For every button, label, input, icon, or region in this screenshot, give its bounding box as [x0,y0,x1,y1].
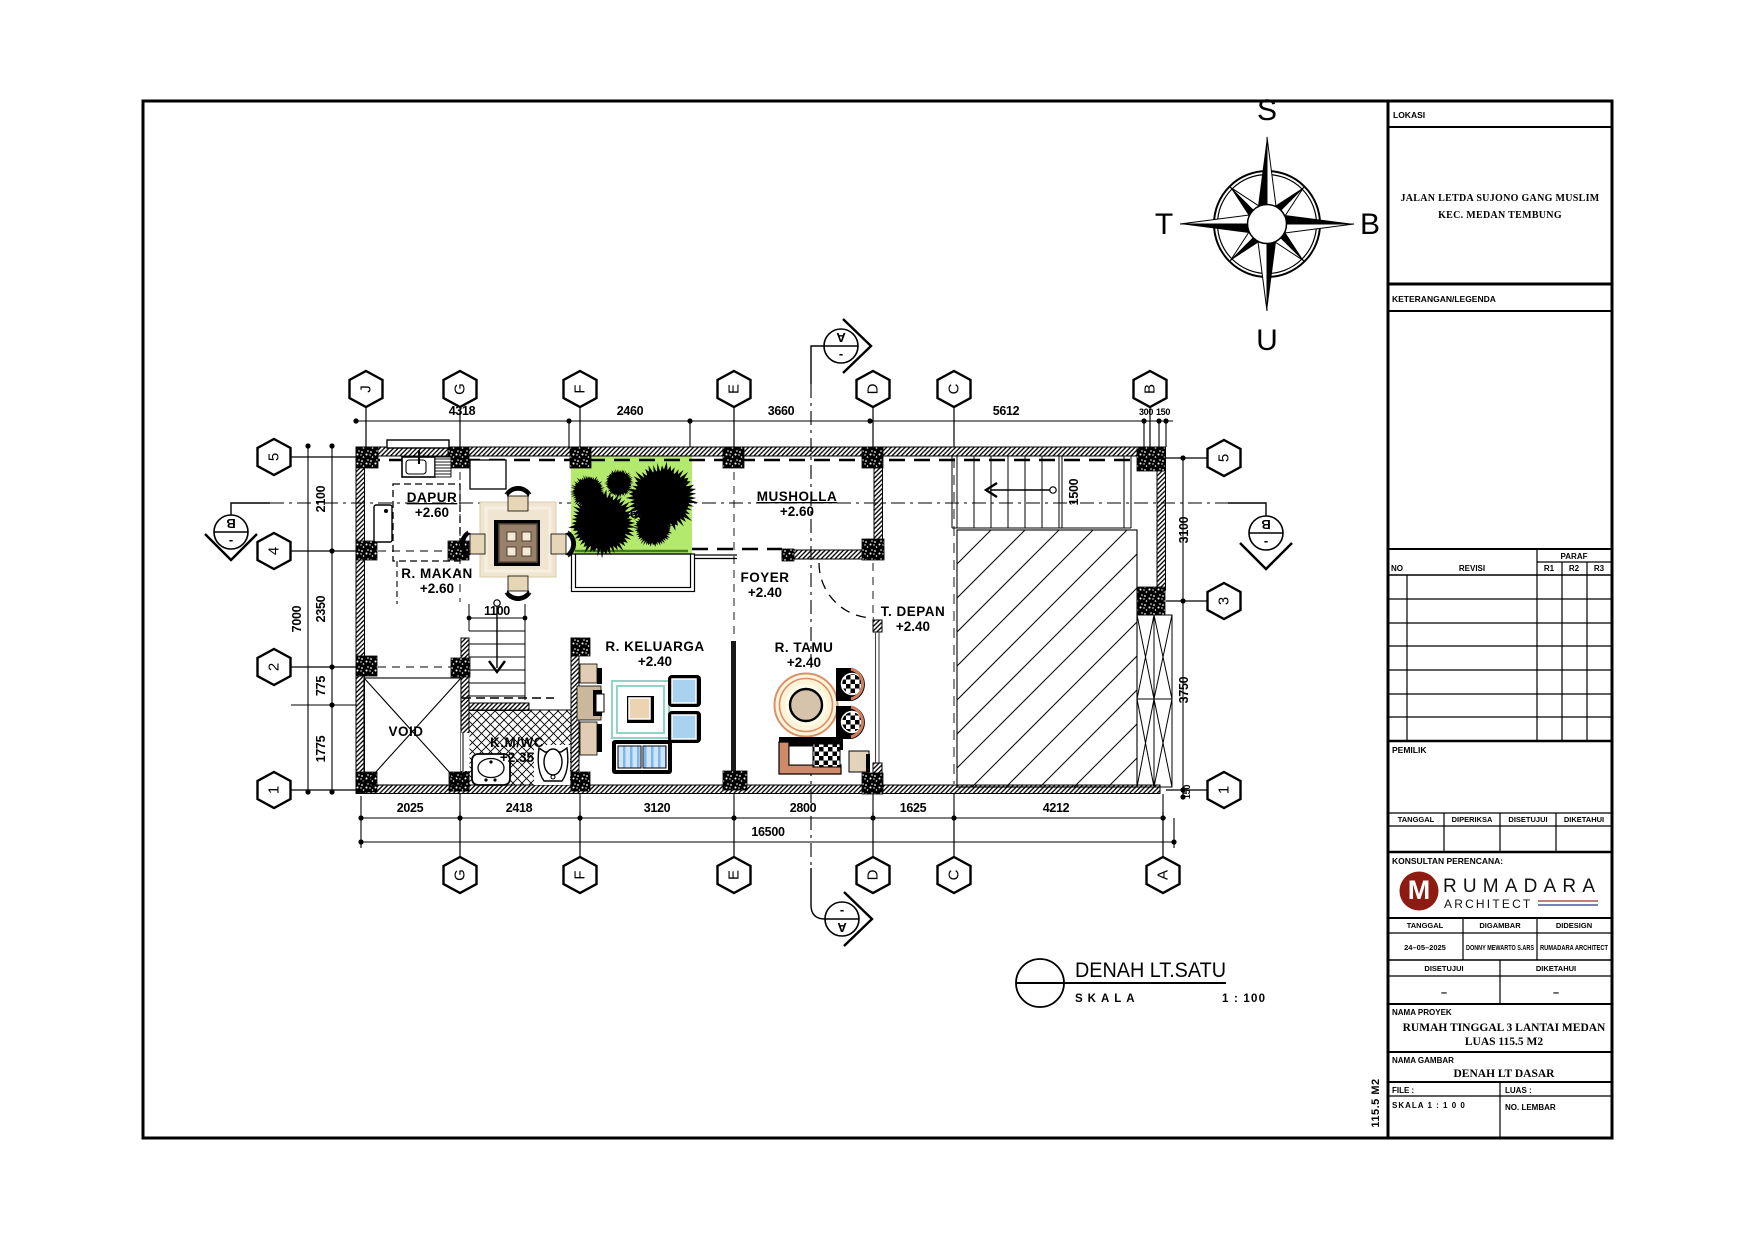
svg-text:DIPERIKSA: DIPERIKSA [1452,815,1493,824]
svg-text:M: M [1408,875,1431,905]
svg-text:G: G [452,383,469,395]
svg-text:R. KELUARGA: R. KELUARGA [605,639,704,654]
svg-text:NO. LEMBAR: NO. LEMBAR [1505,1103,1556,1112]
svg-text:1500: 1500 [1067,478,1081,505]
svg-text:+2.40: +2.40 [748,585,782,600]
svg-text:DONNY MEWARTO S.ARS: DONNY MEWARTO S.ARS [1466,945,1534,952]
svg-text:PEMILIK: PEMILIK [1392,745,1427,755]
svg-text:DIDESIGN: DIDESIGN [1556,921,1592,930]
svg-text:R. MAKAN: R. MAKAN [401,566,473,581]
svg-text:2100: 2100 [314,485,328,512]
svg-text:DENAH LT.SATU: DENAH LT.SATU [1075,958,1226,982]
svg-text:+2.60: +2.60 [780,504,814,519]
svg-text:3: 3 [1216,597,1233,605]
svg-text:-: - [229,532,233,547]
svg-text:-: - [1264,533,1268,548]
svg-text:2: 2 [266,663,283,671]
svg-text:FOYER: FOYER [740,570,789,585]
svg-text:DIKETAHUI: DIKETAHUI [1536,964,1576,973]
svg-text:A: A [836,330,846,345]
svg-text:+2.40: +2.40 [787,655,821,670]
svg-text:5612: 5612 [993,404,1020,418]
svg-text:2025: 2025 [397,801,424,815]
svg-text:2460: 2460 [617,404,644,418]
svg-text:C: C [946,383,963,394]
svg-text:RUMAH TINGGAL 3 LANTAI MEDAN: RUMAH TINGGAL 3 LANTAI MEDAN [1403,1022,1606,1034]
svg-text:TANGGAL: TANGGAL [1407,921,1444,930]
svg-text:RUMADARA ARCHITECT: RUMADARA ARCHITECT [1540,945,1609,952]
svg-text:PARAF: PARAF [1561,552,1588,561]
svg-text:S: S [1257,94,1277,127]
svg-text:K.M/WC: K.M/WC [490,735,544,750]
svg-text:KONSULTAN PERENCANA:: KONSULTAN PERENCANA: [1392,856,1503,866]
svg-text:775: 775 [314,676,328,696]
svg-text:NAMA PROYEK: NAMA PROYEK [1392,1008,1452,1017]
svg-text:DAPUR: DAPUR [407,490,458,505]
svg-text:B: B [1261,517,1270,532]
svg-text:1625: 1625 [900,801,927,815]
svg-text:1775: 1775 [314,735,328,762]
svg-text:D: D [865,383,882,394]
svg-text:2350: 2350 [314,595,328,622]
svg-text:115.5 M2: 115.5 M2 [1370,1078,1382,1127]
svg-text:JALAN LETDA SUJONO GANG MUSLIM: JALAN LETDA SUJONO GANG MUSLIM [1400,193,1599,204]
svg-text:MUSHOLLA: MUSHOLLA [757,489,838,504]
svg-text:1: 1 [266,786,283,794]
svg-text:R2: R2 [1569,564,1580,573]
svg-text:SKALA 1 : 1 0 0: SKALA 1 : 1 0 0 [1392,1101,1466,1110]
svg-text:E: E [726,384,743,394]
svg-text:T. DEPAN: T. DEPAN [881,604,946,619]
svg-text:R. TAMU: R. TAMU [775,640,834,655]
svg-text:B: B [1142,384,1159,394]
svg-text:T: T [1155,208,1173,241]
svg-text:2800: 2800 [790,801,817,815]
svg-text:–: – [1441,987,1447,999]
svg-text:3100: 3100 [1177,516,1191,543]
svg-text:VOID: VOID [388,724,423,739]
svg-text:3120: 3120 [644,801,671,815]
svg-text:5: 5 [266,453,283,461]
svg-text:7000: 7000 [290,605,304,632]
svg-text:150: 150 [1156,407,1170,417]
svg-text:150: 150 [1182,785,1192,799]
svg-text:A: A [837,920,847,935]
svg-text:300: 300 [1139,407,1153,417]
svg-text:+2.35: +2.35 [500,750,535,765]
svg-text:A: A [1155,870,1172,880]
svg-text:DENAH LT DASAR: DENAH LT DASAR [1454,1068,1556,1080]
svg-text:24–05–2025: 24–05–2025 [1404,943,1446,952]
svg-text:LOKASI: LOKASI [1393,110,1425,120]
svg-text:FILE :: FILE : [1392,1086,1414,1095]
svg-text:B: B [226,516,235,531]
svg-text:-: - [839,346,843,361]
svg-text:+2.40: +2.40 [638,654,672,669]
svg-text:NO: NO [1391,564,1403,573]
svg-text:DISETUJUI: DISETUJUI [1508,815,1547,824]
svg-text:2418: 2418 [506,801,533,815]
svg-text:U: U [1256,324,1278,357]
svg-text:5: 5 [1216,454,1233,462]
svg-text:F: F [572,384,589,393]
svg-text:J: J [358,385,375,393]
svg-text:DIGAMBAR: DIGAMBAR [1479,921,1521,930]
svg-text:+2.60: +2.60 [415,505,449,520]
svg-text:ARCHITECT: ARCHITECT [1444,897,1532,911]
svg-text:R3: R3 [1594,564,1605,573]
svg-text:LUAS :: LUAS : [1505,1086,1532,1095]
svg-text:B: B [1360,208,1380,241]
svg-text:16500: 16500 [751,825,785,839]
svg-text:NAMA GAMBAR: NAMA GAMBAR [1392,1056,1454,1065]
svg-text:R1: R1 [1544,564,1555,573]
svg-text:DIKETAHUI: DIKETAHUI [1564,815,1604,824]
svg-text:REVISI: REVISI [1459,564,1485,573]
svg-text:KETERANGAN/LEGENDA: KETERANGAN/LEGENDA [1392,294,1496,304]
svg-text:1 : 100: 1 : 100 [1222,993,1266,1005]
svg-text:+2.40: +2.40 [896,619,930,634]
svg-text:F: F [572,870,589,879]
svg-text:C: C [946,869,963,880]
svg-text:DISETUJUI: DISETUJUI [1424,964,1463,973]
svg-text:4318: 4318 [449,404,476,418]
svg-text:LUAS 115.5 M2: LUAS 115.5 M2 [1465,1036,1544,1048]
svg-text:D: D [865,869,882,880]
svg-text:SKALA: SKALA [1075,993,1140,1005]
svg-text:TANGGAL: TANGGAL [1398,815,1435,824]
svg-text:4: 4 [266,547,283,555]
svg-text:3660: 3660 [768,404,795,418]
svg-text:G: G [452,869,469,881]
svg-text:KEC. MEDAN TEMBUNG: KEC. MEDAN TEMBUNG [1438,210,1562,221]
svg-text:4212: 4212 [1043,801,1070,815]
svg-text:–: – [1553,987,1559,999]
svg-text:-: - [840,902,844,917]
svg-text:+2.60: +2.60 [420,581,454,596]
svg-text:3750: 3750 [1177,676,1191,703]
svg-text:1: 1 [1216,786,1233,794]
svg-text:E: E [726,870,743,880]
